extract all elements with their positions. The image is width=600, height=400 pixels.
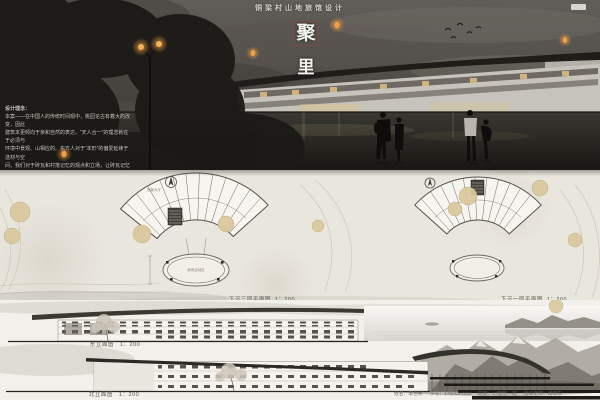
corner-mark: [571, 4, 586, 10]
title-accent-box: 聚: [293, 21, 318, 46]
elevation-band: [0, 300, 600, 400]
east-elevation-label: 东立面图 1：200: [83, 340, 147, 348]
elevation-drawings: [0, 300, 600, 400]
credit-student-id: 学号：1760010108: [430, 390, 471, 397]
design-notes-line: 本案——在中国人的传统时间观中，桃园论古有着大的改变，因此: [5, 113, 133, 129]
courtyard-label: 休闲活动区: [176, 268, 216, 273]
floor-plan-drawings: [0, 170, 600, 300]
project-title-bottom: 里: [290, 53, 322, 78]
credit-line: 姓名：李世彬 学号：1760010108 班级：17建筑一班 指导老师：杨晓东: [394, 390, 598, 397]
credit-advisor: 指导老师：杨晓东: [524, 390, 562, 397]
project-title-top: 聚: [290, 21, 322, 46]
presentation-board: 铜梁村山地旅馆设计 聚 里 设计理念： 本案——在中国人的传统时间观中，桃园论古…: [0, 0, 600, 400]
design-notes-heading: 设计理念：: [5, 105, 133, 113]
credit-name: 姓名：李世彬: [394, 390, 423, 397]
room-label: 观景大厅: [138, 188, 170, 193]
north-elevation-label: 北立面图 1：200: [82, 390, 146, 398]
credit-class: 班级：17建筑一班: [478, 390, 517, 397]
design-notes-line: 环境中景观、山相应的。东方人对于“本形”的偏爱延续于选材与空: [5, 145, 133, 161]
hero-render: 铜梁村山地旅馆设计 聚 里 设计理念： 本案——在中国人的传统时间观中，桃园论古…: [0, 0, 600, 170]
floor-plan-right: [415, 177, 541, 281]
floor-plan-band: 观景大厅 休闲活动区 下沉三层平面图1：200 下沉一层平面图1：200: [0, 170, 600, 300]
design-notes-line: 建筑本更倾向于亲和自然的表达。“天人合一”的理念就在于必须与: [5, 129, 133, 145]
board-subtitle: 铜梁村山地旅馆设计: [0, 3, 600, 13]
